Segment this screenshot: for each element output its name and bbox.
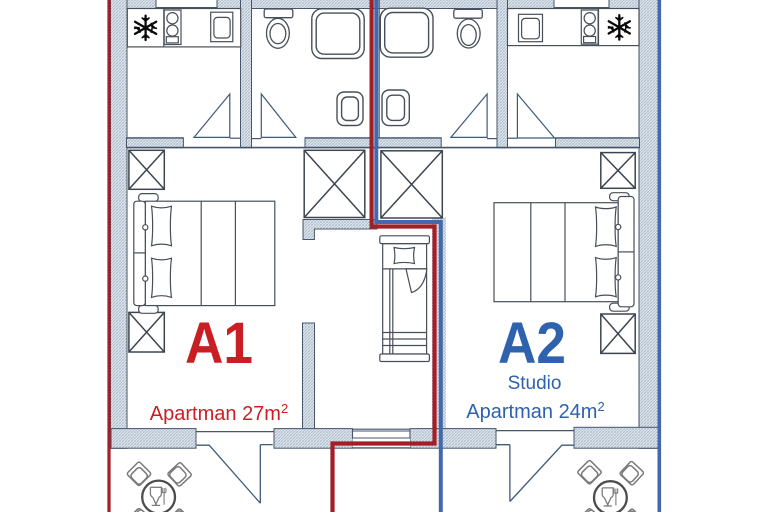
svg-text:Studio: Studio — [508, 373, 562, 394]
svg-text:A2: A2 — [498, 311, 566, 376]
svg-text:Apartman 27m2: Apartman 27m2 — [150, 401, 288, 425]
svg-text:Apartman 24m2: Apartman 24m2 — [466, 399, 604, 423]
svg-text:A1: A1 — [185, 311, 253, 376]
